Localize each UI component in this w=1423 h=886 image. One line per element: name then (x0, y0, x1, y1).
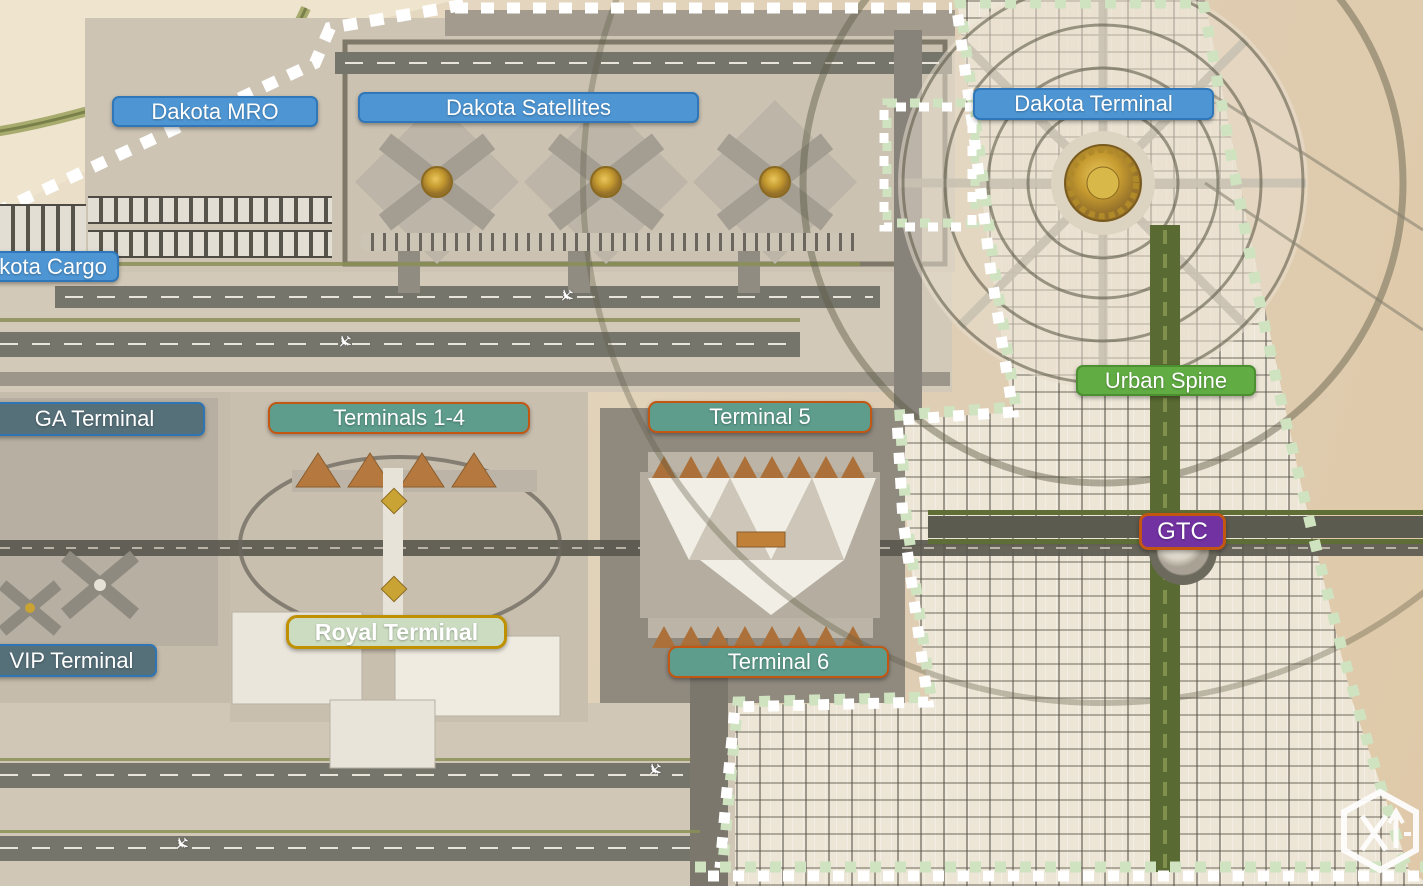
airplane-icon: ✈ (643, 758, 669, 784)
label-dakota-satellites: Dakota Satellites (358, 92, 699, 123)
terminals-1-4-complex (240, 453, 560, 633)
label-terminal-5: Terminal 5 (648, 401, 872, 433)
label-urban-spine-text: Urban Spine (1105, 370, 1227, 392)
label-vip-terminal: VIP Terminal (0, 644, 157, 677)
cargo-hangar-row (0, 204, 86, 258)
label-vip-terminal-text: VIP Terminal (10, 650, 134, 672)
watermark-logo (1334, 788, 1423, 874)
mro-hangar-row (88, 230, 332, 258)
label-royal-terminal: Royal Terminal (286, 615, 507, 649)
label-dakota-mro: Dakota MRO (112, 96, 318, 127)
airplane-icon: ✈ (170, 832, 196, 858)
label-ga-terminal: GA Terminal (0, 402, 205, 436)
label-terminals-1-4: Terminals 1-4 (268, 402, 530, 434)
label-dakota-cargo-text: Dakota Cargo (0, 256, 107, 278)
label-dakota-satellites-text: Dakota Satellites (446, 97, 611, 119)
label-gtc: GTC (1139, 513, 1226, 550)
ga-vip-buildings (0, 551, 139, 636)
label-urban-spine: Urban Spine (1076, 365, 1256, 396)
label-royal-terminal-text: Royal Terminal (315, 621, 478, 644)
aircraft-stands-row (362, 233, 854, 251)
terminal-subarea-box (884, 103, 975, 227)
label-terminals-1-4-text: Terminals 1-4 (333, 407, 465, 429)
label-dakota-cargo: Dakota Cargo (0, 251, 119, 282)
label-dakota-mro-text: Dakota MRO (151, 101, 278, 123)
airplane-icon: ✈ (333, 330, 359, 356)
mro-hangar-row (88, 196, 332, 224)
label-terminal-6: Terminal 6 (668, 646, 889, 678)
airplane-icon: ✈ (555, 284, 581, 310)
label-terminal-6-text: Terminal 6 (728, 651, 829, 673)
label-dakota-terminal-text: Dakota Terminal (1014, 93, 1173, 115)
label-ga-terminal-text: GA Terminal (35, 408, 154, 430)
label-dakota-terminal: Dakota Terminal (973, 88, 1214, 120)
masterplan-render: ✈ ✈ ✈ ✈ Dakota MRO Dakota Satellites Dak… (0, 0, 1423, 886)
terminal-5-6-complex (640, 452, 880, 648)
city-grid (0, 0, 1423, 886)
label-terminal-5-text: Terminal 5 (709, 406, 810, 428)
label-gtc-text: GTC (1157, 520, 1208, 544)
